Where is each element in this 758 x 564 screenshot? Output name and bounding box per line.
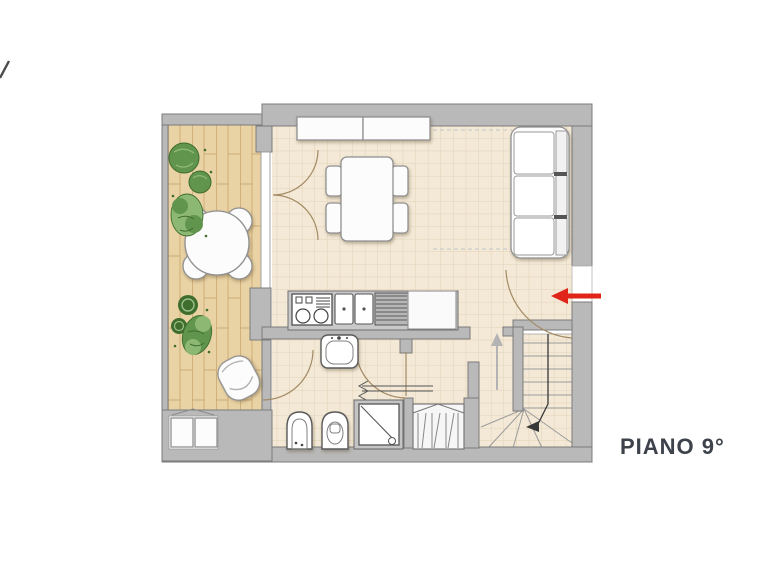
floor-plan <box>0 0 758 564</box>
counter-worktop <box>408 291 456 329</box>
kitchen-counter <box>288 291 458 330</box>
sideboard-cabinet <box>297 117 430 140</box>
toilet <box>322 412 348 449</box>
wardrobe-closet <box>413 404 464 449</box>
shower <box>354 400 403 449</box>
bidet <box>287 412 312 449</box>
cooktop <box>292 294 332 325</box>
page: { "page": { "background": "#ffffff" }, "… <box>0 0 758 564</box>
floor-label: PIANO 9° <box>620 434 725 460</box>
three-seat-sofa <box>511 127 569 258</box>
terrace-glass-door <box>261 152 270 288</box>
washbasin <box>321 335 358 368</box>
drainer <box>375 293 408 325</box>
